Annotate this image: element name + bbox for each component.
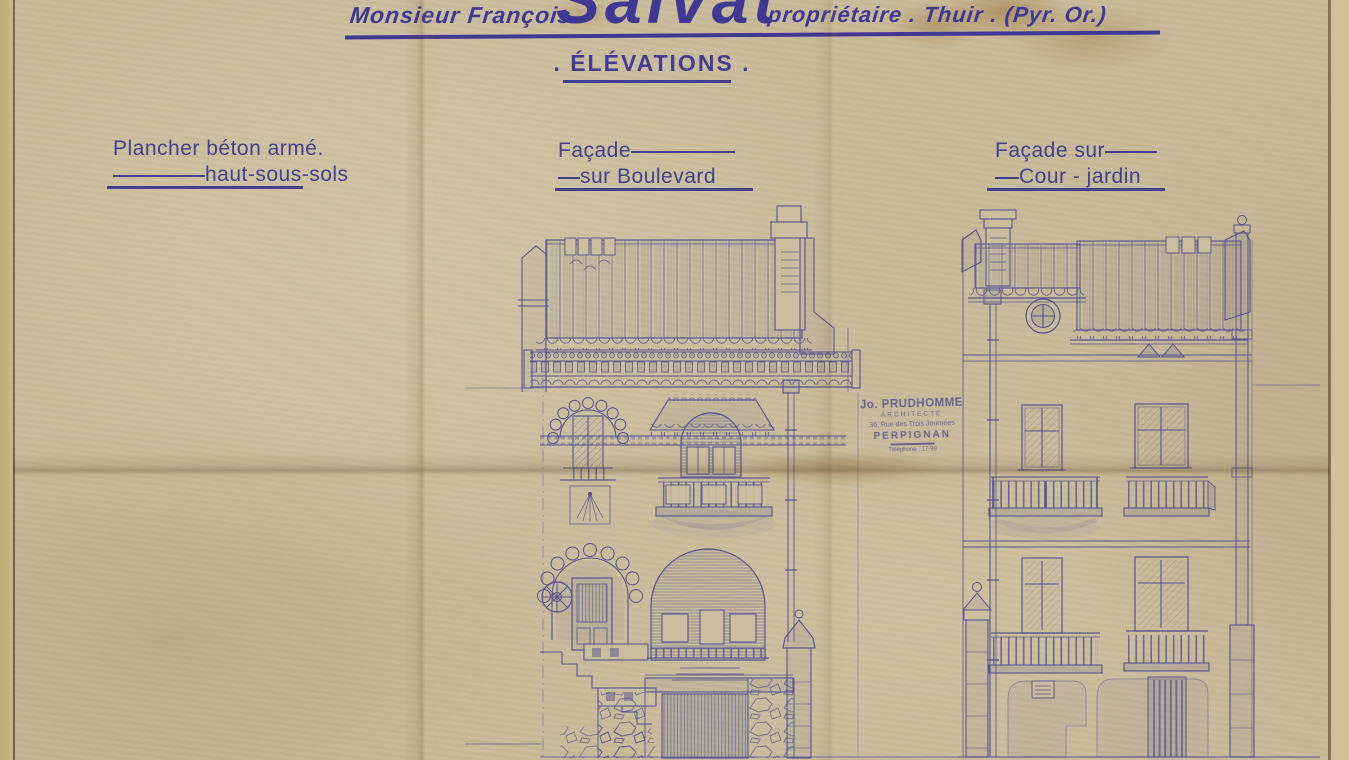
vertical-fold-crease-left [404,0,438,760]
page-title-underline [563,80,731,83]
label-garden-line1: Façade sur [995,139,1105,162]
label-plancher-line2: haut-sous-sols [205,163,349,186]
label-fill-line [1105,151,1157,153]
label-garden-line2: Cour - jardin [1019,165,1141,188]
paper-left-fold-line [13,0,15,760]
paper-left-edge [0,0,13,760]
label-underline [555,188,753,191]
title-owner-suffix: propriétaire . Thuir . (Pyr. Or.) [767,2,1108,28]
title-underline [345,31,1160,39]
elevations-drawing [440,195,1349,760]
label-fill-line [113,175,205,177]
label-underline [107,186,303,189]
label-fill-line [995,177,1019,179]
facade-cour-jardin-drawing [958,210,1320,757]
label-fill-line [631,151,735,153]
label-plancher-line1: Plancher béton armé. [113,137,324,160]
label-boulevard-line1: Façade [558,139,631,162]
facade-boulevard-drawing [465,206,958,758]
label-plancher: Plancher béton armé. haut-sous-sols [113,136,349,188]
label-fill-line [558,177,580,179]
label-underline [987,188,1165,191]
drawing-sheet: Monsieur François Salvat propriétaire . … [0,0,1349,760]
label-facade-jardin: Façade sur Cour - jardin [995,138,1157,190]
title-owner-prefix: Monsieur François [349,2,573,29]
label-facade-boulevard: Façade sur Boulevard [558,138,735,190]
page-title: . ÉLÉVATIONS . [552,50,752,77]
label-boulevard-line2: sur Boulevard [580,165,716,188]
title-owner-name: Salvat [556,0,780,38]
